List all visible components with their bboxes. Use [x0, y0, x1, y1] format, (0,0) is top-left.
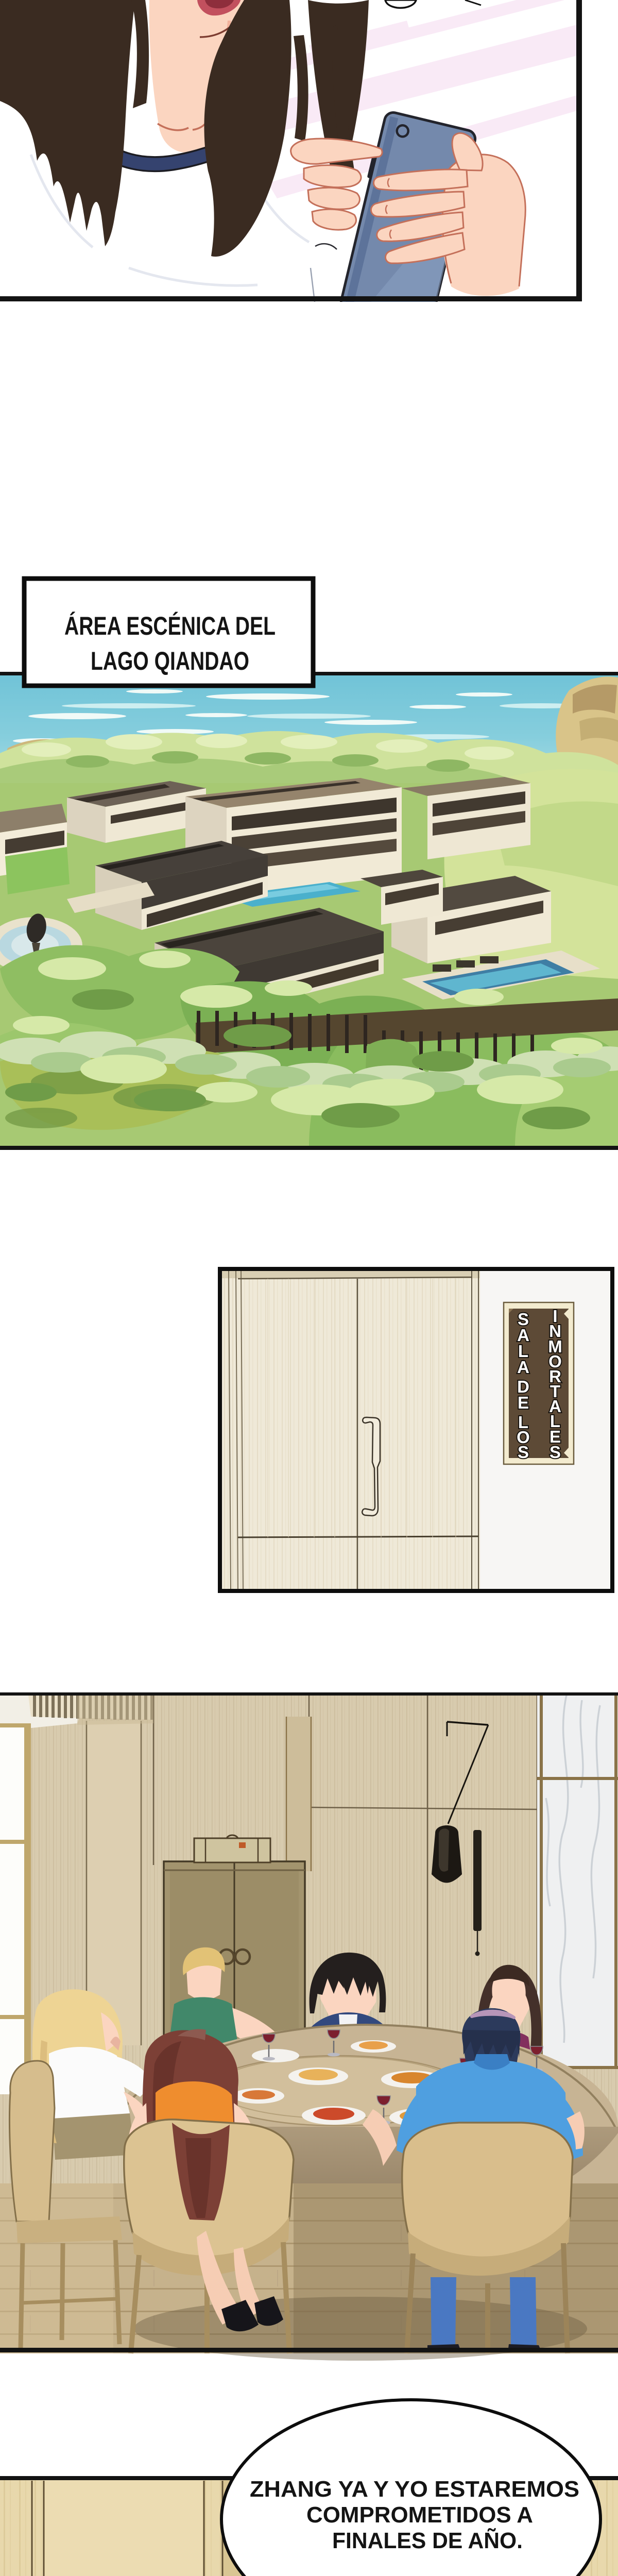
svg-text:COMPROMETIDOS A: COMPROMETIDOS A [306, 2502, 533, 2528]
svg-text:ÁREA ESCÉNICA DEL: ÁREA ESCÉNICA DEL [64, 612, 276, 640]
svg-text:S: S [550, 1443, 561, 1462]
svg-text:LAGO QIANDAO: LAGO QIANDAO [91, 647, 249, 675]
svg-text:ZHANG YA Y YO ESTAREMOS: ZHANG YA Y YO ESTAREMOS [250, 2477, 579, 2502]
svg-text:FINALES DE AÑO.: FINALES DE AÑO. [332, 2528, 523, 2553]
svg-text:E: E [518, 1393, 529, 1412]
svg-text:A: A [517, 1358, 529, 1377]
svg-text:S: S [518, 1443, 529, 1462]
